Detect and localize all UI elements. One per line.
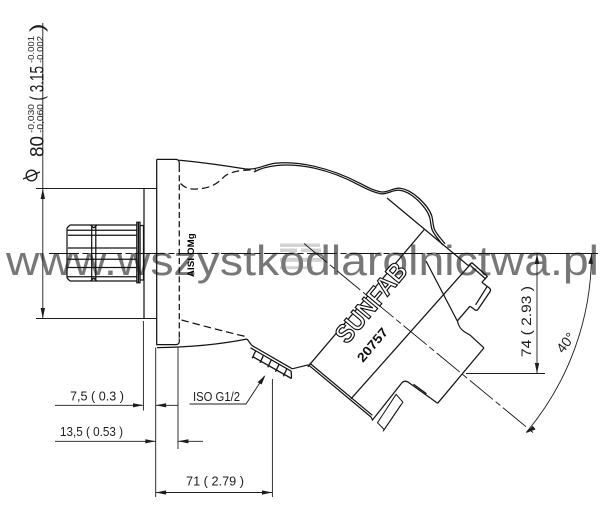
svg-text:74 ( 2.93 ): 74 ( 2.93 ) [519,286,534,357]
svg-text:AISI OMg: AISI OMg [186,233,197,277]
svg-text:71 ( 2.79 ): 71 ( 2.79 ) [186,474,244,489]
svg-text:( 3.15: ( 3.15 [28,66,49,101]
svg-text:13,5 ( 0.53 ): 13,5 ( 0.53 ) [60,424,123,439]
svg-text:7,5 ( 0.3 ): 7,5 ( 0.3 ) [70,389,124,404]
svg-text:ISO G1/2: ISO G1/2 [193,389,240,404]
svg-text:): ) [28,24,49,33]
svg-text:-0,060: -0,060 [35,104,45,133]
svg-text:80: 80 [28,136,49,157]
svg-text:-0.002: -0.002 [35,36,45,63]
